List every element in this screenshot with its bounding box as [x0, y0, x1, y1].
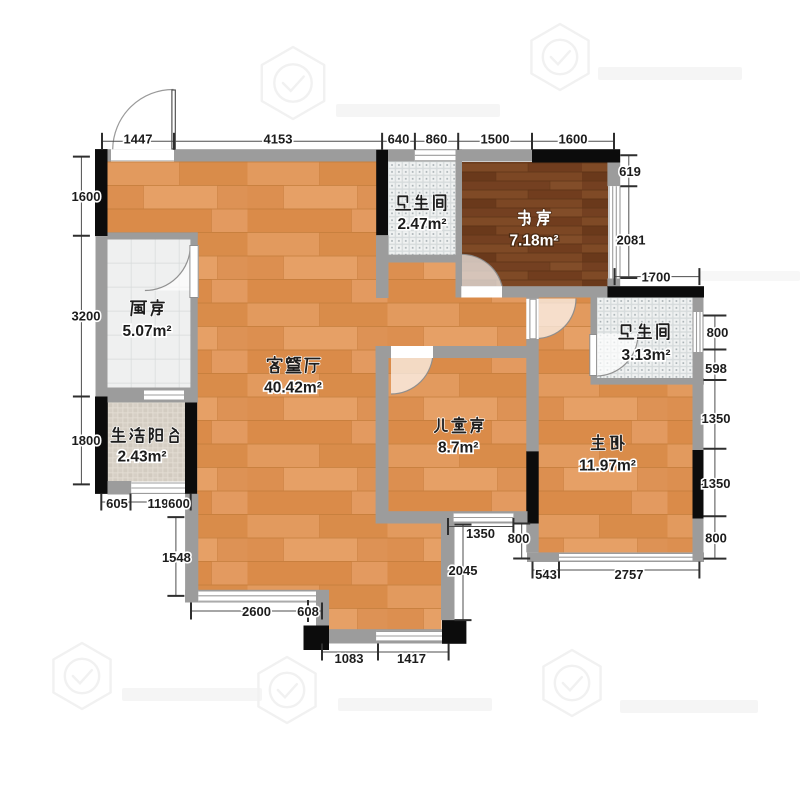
svg-text:1500: 1500: [481, 131, 510, 146]
svg-text:640: 640: [388, 131, 410, 146]
svg-text:800: 800: [508, 531, 530, 546]
svg-text:800: 800: [707, 325, 729, 340]
svg-text:1800: 1800: [72, 433, 101, 448]
svg-text:619: 619: [619, 164, 641, 179]
svg-text:7.18m²: 7.18m²: [509, 233, 558, 250]
svg-text:11.97m²: 11.97m²: [579, 458, 636, 475]
svg-text:1083: 1083: [335, 651, 364, 666]
svg-text:598: 598: [705, 361, 727, 376]
svg-text:8.7m²: 8.7m²: [438, 440, 479, 457]
svg-text:2600: 2600: [242, 604, 271, 619]
svg-text:2081: 2081: [617, 233, 646, 248]
svg-text:860: 860: [426, 131, 448, 146]
svg-text:40.42m²: 40.42m²: [264, 380, 322, 397]
svg-text:5.07m²: 5.07m²: [122, 323, 171, 340]
svg-text:2045: 2045: [449, 563, 478, 578]
svg-text:1600: 1600: [559, 131, 588, 146]
svg-text:600: 600: [168, 496, 190, 511]
svg-text:3.13m²: 3.13m²: [621, 347, 670, 364]
svg-text:1350: 1350: [702, 476, 731, 491]
svg-text:1600: 1600: [72, 189, 101, 204]
svg-text:608: 608: [297, 604, 319, 619]
svg-text:1700: 1700: [642, 270, 671, 285]
svg-text:1350: 1350: [466, 526, 495, 541]
svg-text:119: 119: [148, 496, 169, 511]
svg-text:1447: 1447: [124, 131, 153, 146]
svg-text:4153: 4153: [264, 131, 293, 146]
svg-text:2.43m²: 2.43m²: [117, 449, 166, 466]
svg-text:3200: 3200: [72, 309, 101, 324]
svg-text:1350: 1350: [702, 411, 731, 426]
svg-text:800: 800: [705, 531, 727, 546]
svg-text:2757: 2757: [615, 567, 644, 582]
svg-text:1417: 1417: [397, 651, 426, 666]
svg-text:1548: 1548: [162, 550, 191, 565]
svg-text:2.47m²: 2.47m²: [397, 216, 446, 233]
svg-text:605: 605: [106, 496, 128, 511]
svg-text:543: 543: [535, 567, 557, 582]
